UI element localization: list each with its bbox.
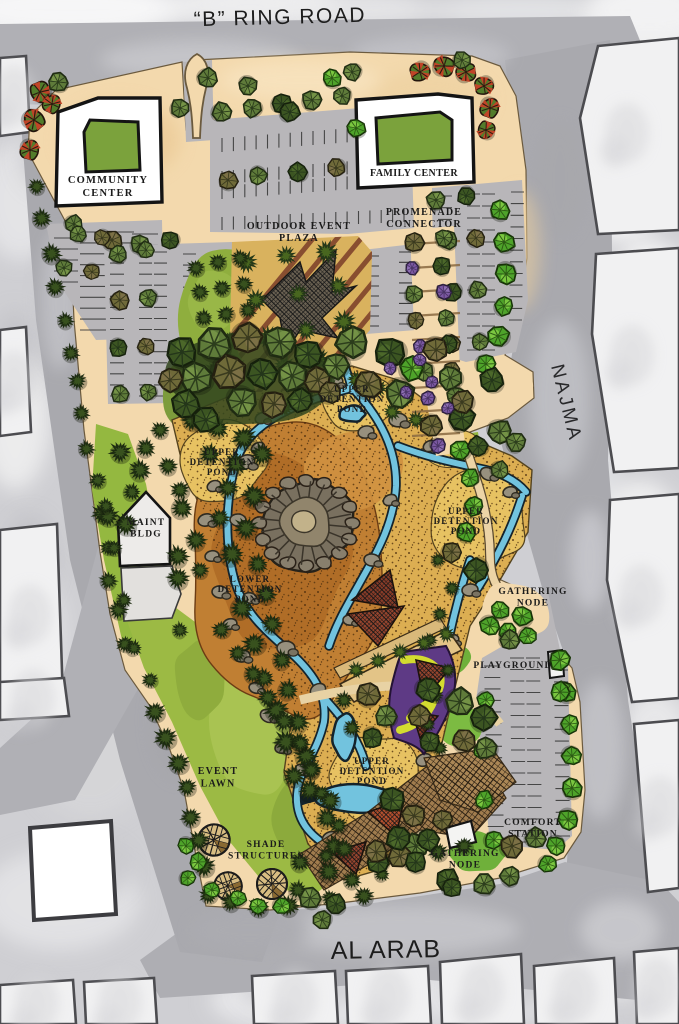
svg-text:FAMILY CENTER: FAMILY CENTER [370,168,458,179]
svg-text:“B” RING ROAD: “B” RING ROAD [193,4,366,32]
svg-text:EVENTLAWN: EVENTLAWN [198,766,238,790]
svg-text:COMFORTSTATION: COMFORTSTATION [504,818,562,840]
svg-text:MAINTBLDG: MAINTBLDG [127,518,166,540]
svg-text:PROMENADECONNECTOR: PROMENADECONNECTOR [386,207,462,230]
svg-text:AL ARAB: AL ARAB [331,935,442,965]
svg-text:PLAYGROUND: PLAYGROUND [473,661,552,671]
